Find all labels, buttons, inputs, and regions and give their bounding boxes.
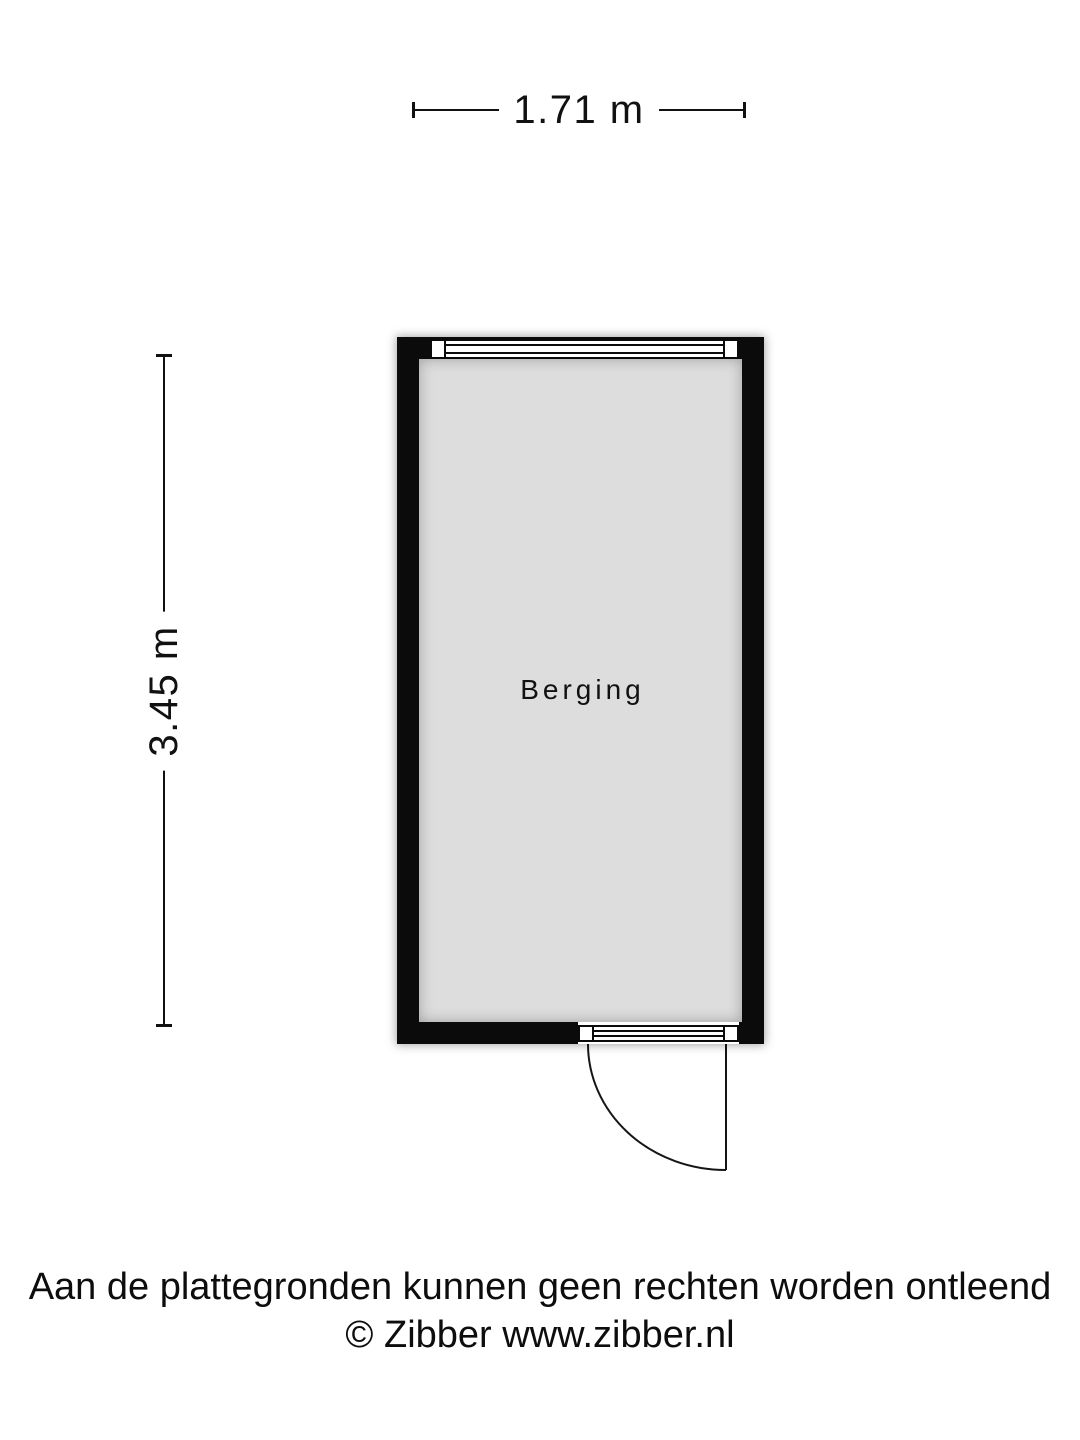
dimension-width-tick-right: [743, 102, 746, 118]
dimension-height-tick-top: [156, 354, 172, 357]
disclaimer-text: Aan de plattegronden kunnen geen rechten…: [0, 1263, 1080, 1311]
floorplan-page: 1.71 m 3.45 m Berging A: [0, 0, 1080, 1440]
dimension-width-tick-left: [412, 102, 415, 118]
footer: Aan de plattegronden kunnen geen rechten…: [0, 1263, 1080, 1359]
door-swing-icon: [560, 1030, 800, 1200]
door-arc: [588, 1044, 726, 1170]
dimension-height-tick-bottom: [156, 1024, 172, 1027]
window-icon: [430, 339, 739, 359]
dimension-height: 3.45 m: [148, 355, 180, 1026]
room-walls: Berging: [397, 337, 764, 1044]
window-jamb-right: [723, 341, 725, 357]
dimension-width: 1.71 m: [413, 88, 745, 132]
window-glazing: [444, 344, 725, 354]
dimension-height-label: 3.45 m: [142, 611, 186, 770]
dimension-width-label: 1.71 m: [499, 88, 658, 132]
copyright-text: © Zibber www.zibber.nl: [0, 1311, 1080, 1359]
window-jamb-left: [444, 341, 446, 357]
room-label: Berging: [397, 675, 764, 705]
